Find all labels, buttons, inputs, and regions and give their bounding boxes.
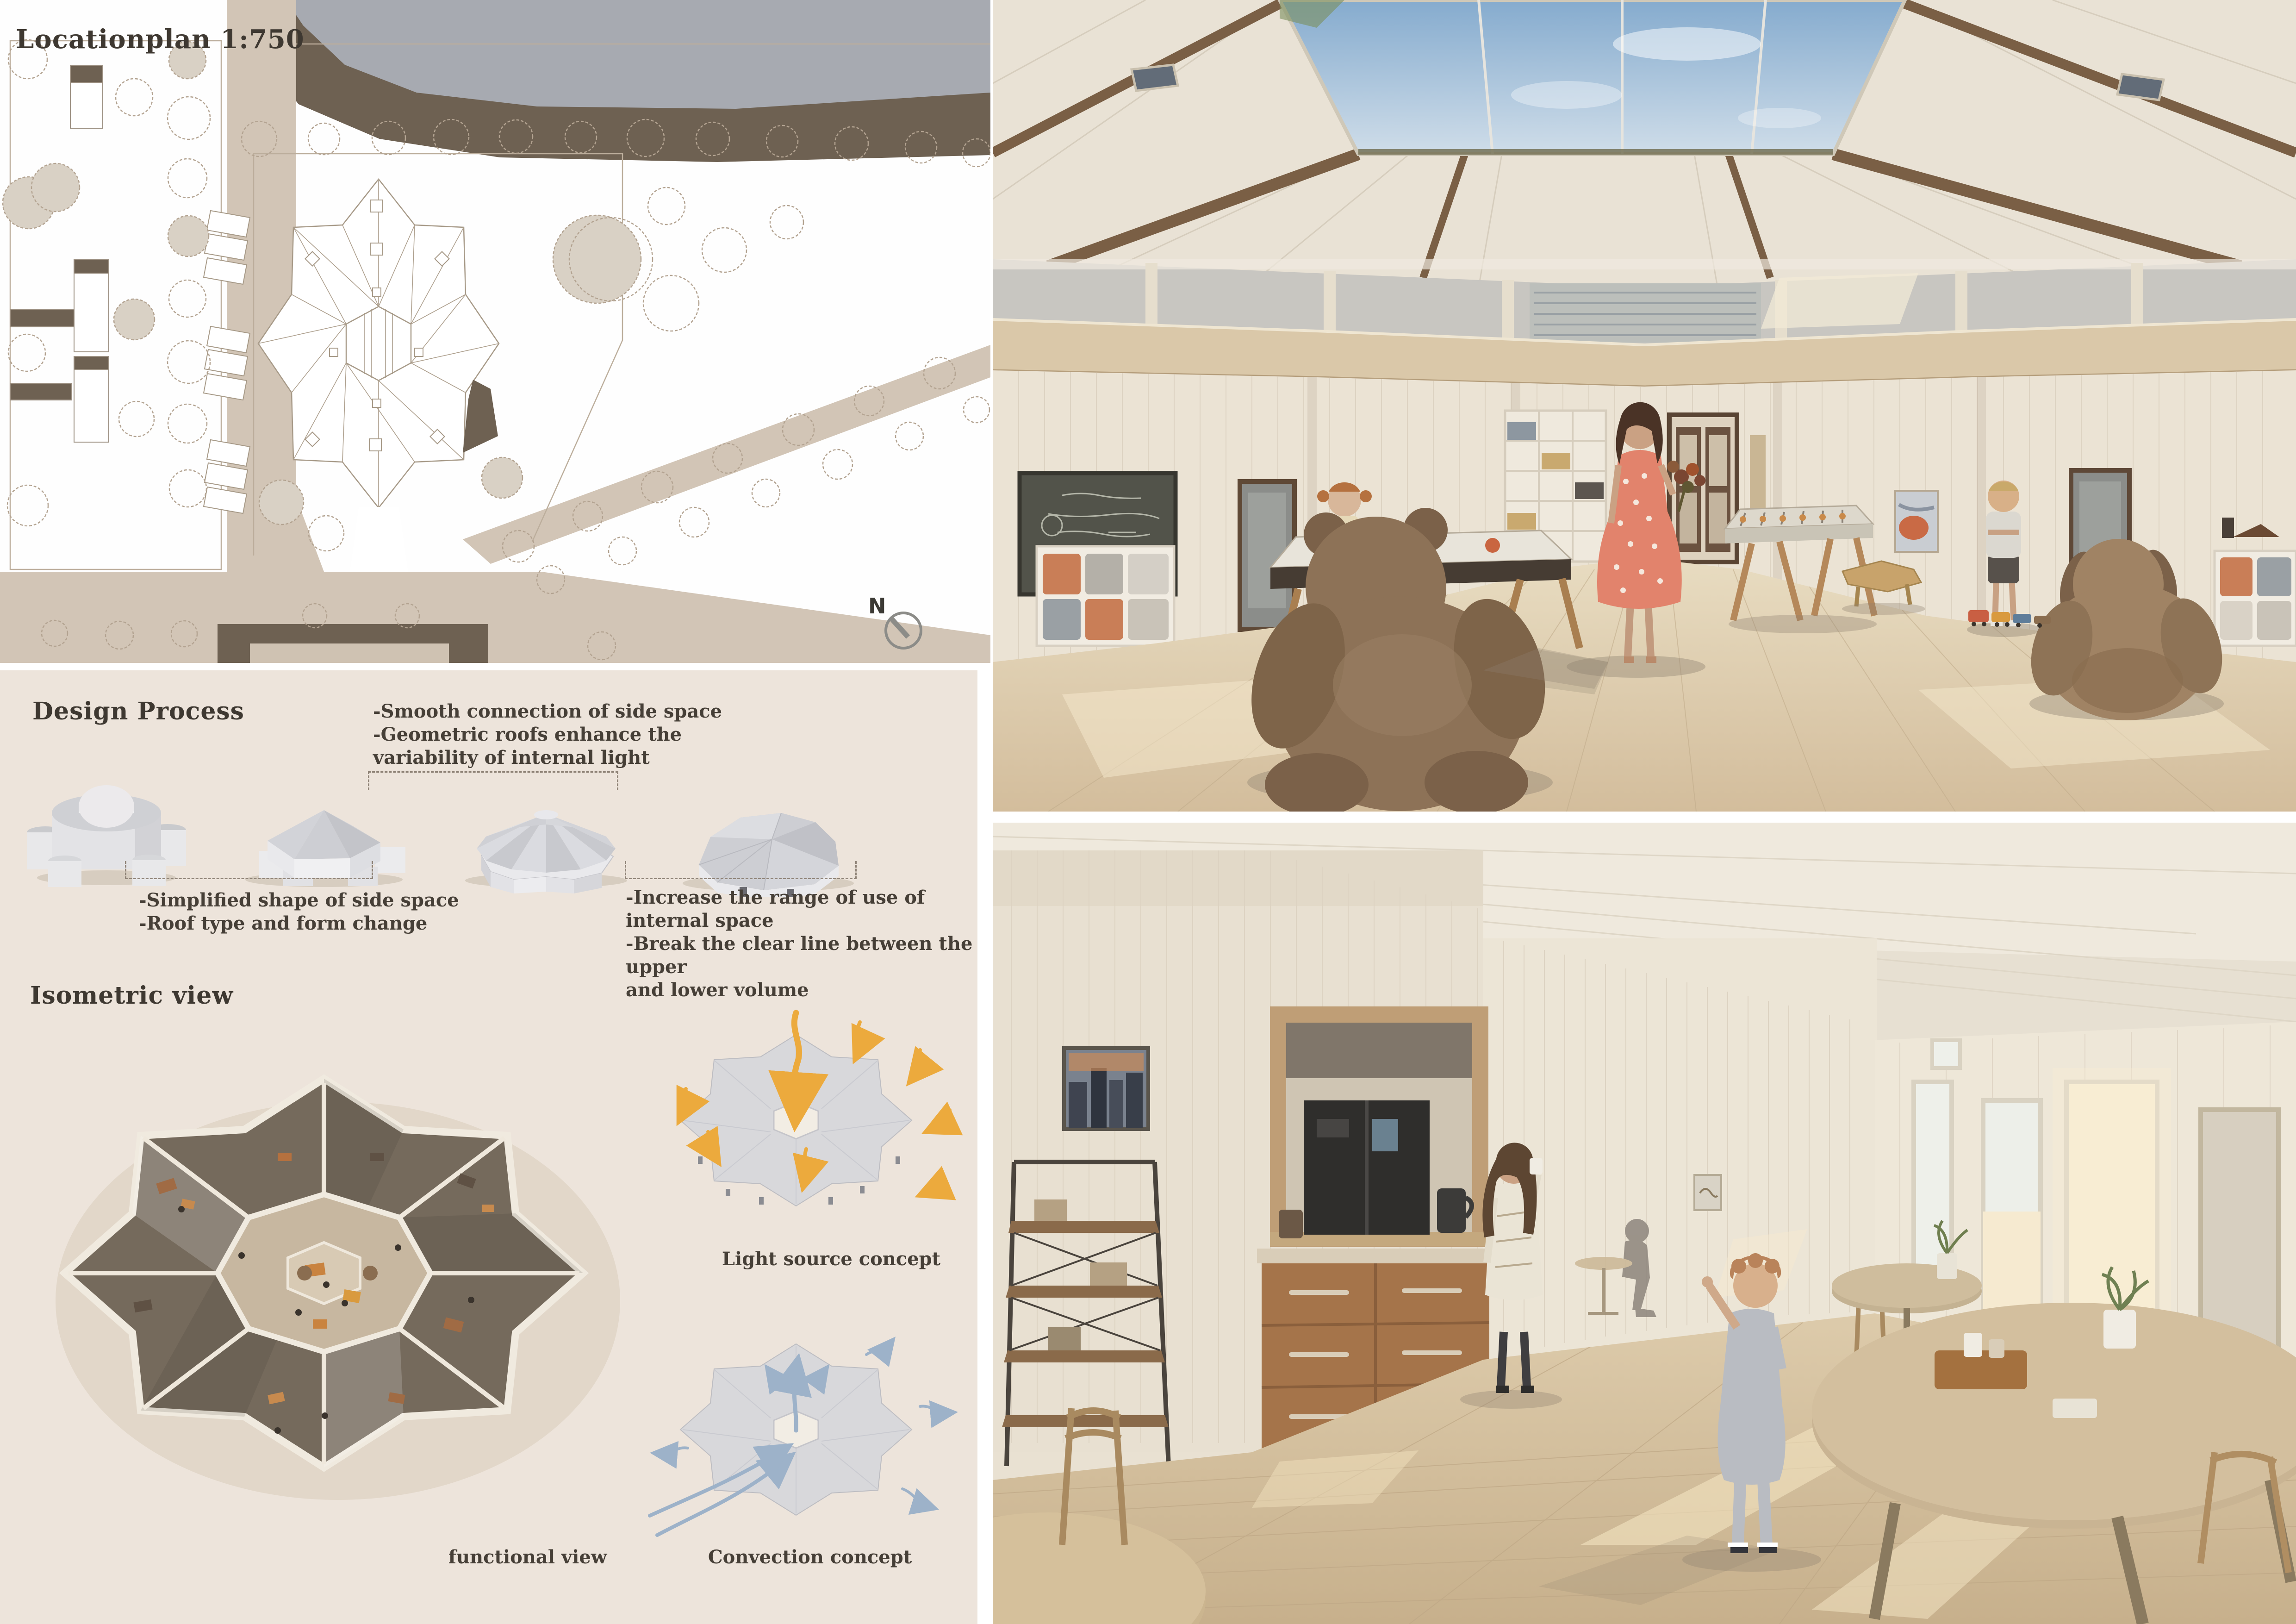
- convection-diagram: [643, 1314, 977, 1545]
- south-building: [218, 624, 488, 663]
- playroom-scene: [993, 0, 2296, 812]
- lantern: [2222, 518, 2234, 538]
- annotation-simplified-shape: -Simplified shape of side space -Roof ty…: [139, 889, 459, 935]
- site-plan-drawing: [0, 0, 990, 663]
- serving-hatch: [1270, 1006, 1488, 1247]
- isometric-cutaway: [19, 1014, 666, 1537]
- mezzanine-grille: [1530, 283, 1761, 343]
- north-label: N: [868, 593, 886, 618]
- bracket-bottom-right: [625, 861, 857, 879]
- canister: [1279, 1210, 1303, 1238]
- skylight: [1280, 0, 1905, 155]
- wall-artwork: [1895, 491, 1938, 552]
- small-picture: [1694, 1175, 1721, 1210]
- caption-light-source: Light source concept: [685, 1248, 977, 1270]
- coffee-machine: [1304, 1100, 1430, 1235]
- bracket-bottom-left: [125, 861, 373, 879]
- entrance-path: [350, 507, 408, 572]
- location-plan-title: Locationplan 1:750: [16, 24, 305, 55]
- light-source-diagram: [643, 995, 977, 1245]
- kitchen-scene: [993, 823, 2296, 1624]
- caption-convection: Convection concept: [657, 1546, 963, 1568]
- caption-functional-view: functional view: [398, 1546, 657, 1568]
- isometric-view-heading: Isometric view: [30, 981, 233, 1010]
- design-process-heading: Design Process: [32, 697, 244, 725]
- massing-step-3: [465, 810, 627, 893]
- neighbour-buildings: [10, 66, 109, 442]
- annotation-increase-range: -Increase the range of use of internal s…: [626, 886, 977, 1002]
- massing-step-4: [683, 813, 854, 897]
- location-plan-panel: Locationplan 1:750 N: [0, 0, 990, 663]
- notepad: [2053, 1399, 2097, 1418]
- playroom-render: [993, 0, 2296, 812]
- roof-shadow-wedge: [463, 380, 498, 453]
- storage-cubbies-left: [1037, 546, 1174, 646]
- design-process-panel: Design Process -Smooth connection of sid…: [0, 670, 977, 1624]
- city-picture: [1064, 1048, 1148, 1129]
- kitchen-render: [993, 823, 2296, 1624]
- far-wall: [1483, 938, 1877, 1360]
- cup: [1530, 1158, 1543, 1174]
- presentation-board: Locationplan 1:750 N Design Process -Smo…: [0, 0, 2296, 1624]
